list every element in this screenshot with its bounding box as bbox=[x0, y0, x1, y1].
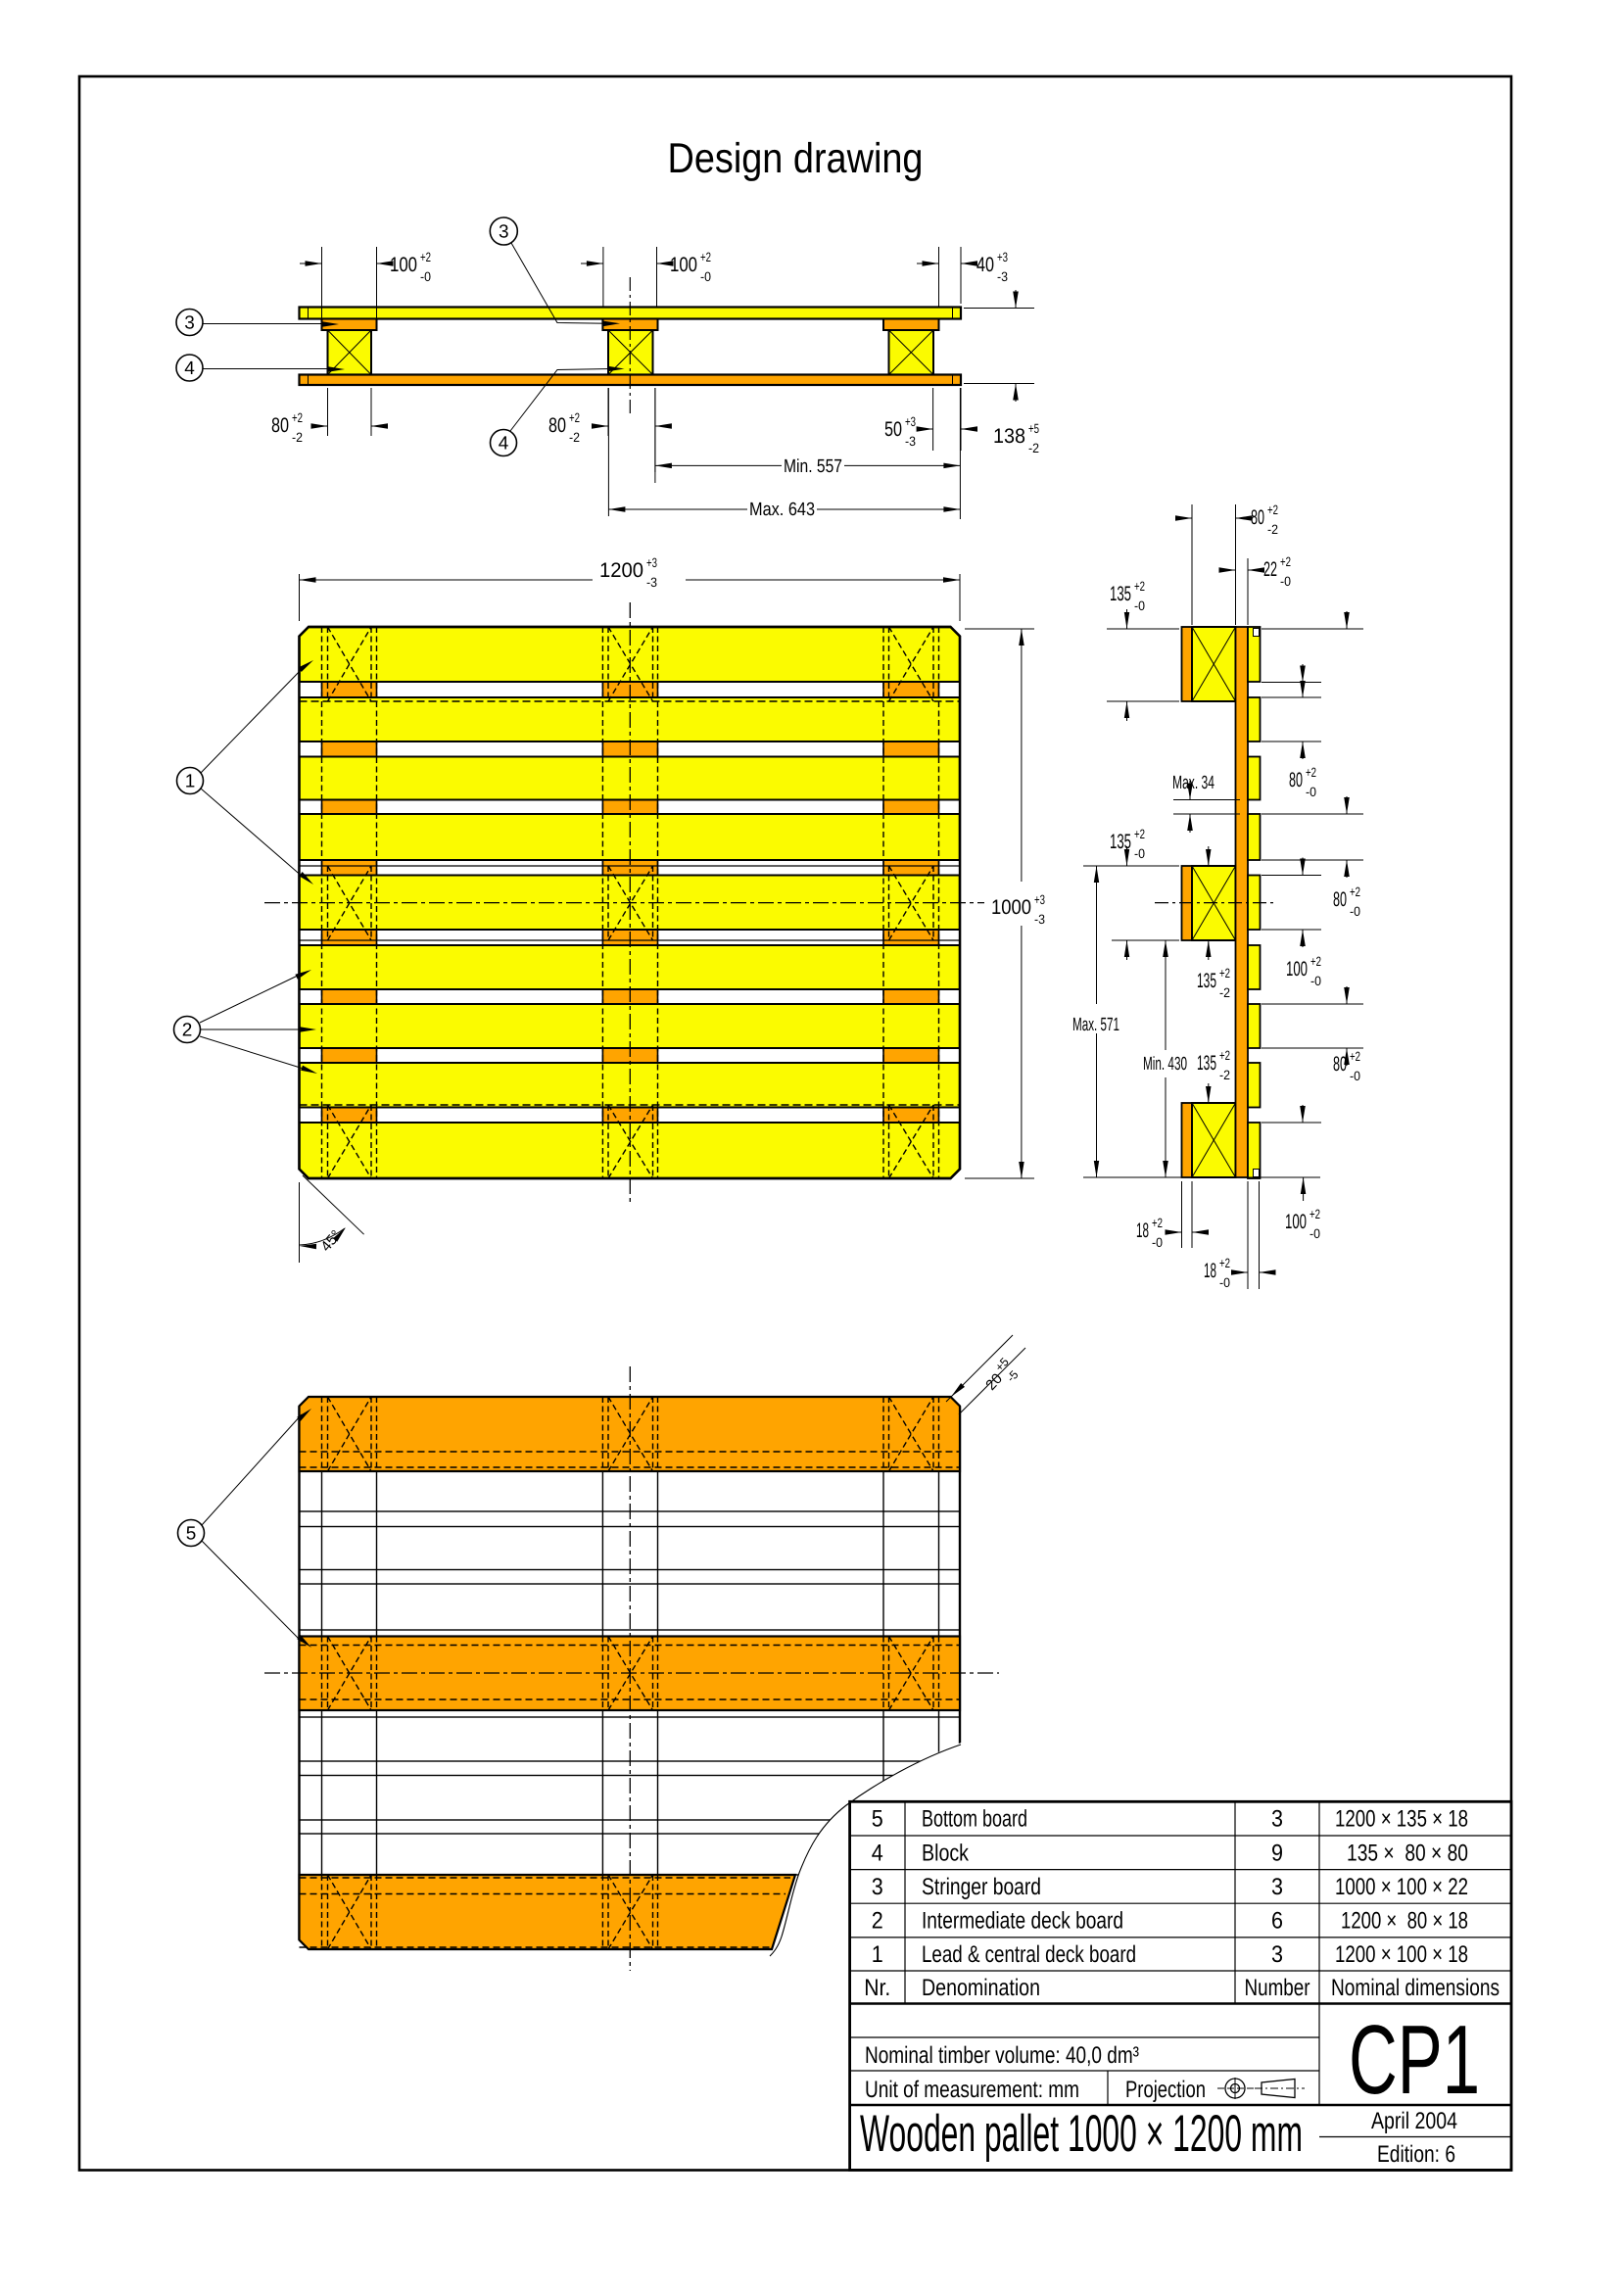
svg-text:Lead & central deck board: Lead & central deck board bbox=[922, 1941, 1136, 1968]
svg-text:+2: +2 bbox=[1280, 554, 1291, 569]
svg-text:100: 100 bbox=[670, 254, 697, 276]
svg-text:+2: +2 bbox=[1219, 966, 1230, 981]
svg-text:Intermediate deck board: Intermediate deck board bbox=[922, 1908, 1123, 1935]
svg-text:135: 135 bbox=[1110, 831, 1131, 853]
svg-text:-3: -3 bbox=[646, 575, 657, 590]
svg-text:Wooden pallet 1000 × 1200 mm: Wooden pallet 1000 × 1200 mm bbox=[860, 2105, 1303, 2163]
svg-text:-0: -0 bbox=[1309, 1226, 1320, 1241]
svg-text:Denomination: Denomination bbox=[922, 1975, 1040, 2001]
svg-text:80: 80 bbox=[1251, 506, 1264, 529]
svg-text:100: 100 bbox=[1285, 1211, 1307, 1233]
svg-text:3: 3 bbox=[1271, 1941, 1283, 1968]
svg-text:+2: +2 bbox=[1219, 1048, 1230, 1063]
svg-text:1: 1 bbox=[185, 772, 196, 792]
svg-text:80: 80 bbox=[1333, 1053, 1347, 1076]
svg-text:+2: +2 bbox=[1267, 502, 1278, 517]
svg-text:CP1: CP1 bbox=[1349, 2005, 1480, 2115]
svg-text:1: 1 bbox=[872, 1941, 883, 1968]
svg-text:5: 5 bbox=[186, 1524, 197, 1545]
svg-text:4: 4 bbox=[184, 359, 195, 379]
svg-text:-2: -2 bbox=[1219, 985, 1230, 1000]
svg-text:2: 2 bbox=[872, 1908, 883, 1935]
svg-text:3: 3 bbox=[499, 222, 509, 243]
svg-text:80: 80 bbox=[1289, 769, 1303, 791]
svg-text:5: 5 bbox=[872, 1806, 883, 1833]
svg-text:+2: +2 bbox=[700, 250, 711, 264]
svg-text:Edition: 6: Edition: 6 bbox=[1377, 2141, 1455, 2168]
svg-text:Unit of measurement: mm: Unit of measurement: mm bbox=[865, 2077, 1079, 2103]
svg-text:+2: +2 bbox=[1306, 765, 1316, 780]
svg-text:138: 138 bbox=[993, 425, 1025, 448]
svg-text:135: 135 bbox=[1197, 1052, 1216, 1075]
svg-text:Nominal timber volume: 40,0 dm: Nominal timber volume: 40,0 dm³ bbox=[865, 2042, 1139, 2069]
svg-text:Block: Block bbox=[922, 1840, 970, 1866]
svg-text:-0: -0 bbox=[1134, 846, 1145, 861]
svg-text:50: 50 bbox=[884, 418, 902, 441]
svg-text:-0: -0 bbox=[700, 269, 711, 284]
svg-text:1200 × 80 × 18: 1200 × 80 × 18 bbox=[1341, 1908, 1468, 1935]
svg-text:3: 3 bbox=[184, 313, 195, 334]
svg-text:-2: -2 bbox=[569, 430, 580, 445]
svg-text:Max. 643: Max. 643 bbox=[749, 500, 815, 520]
svg-text:April 2004: April 2004 bbox=[1371, 2108, 1457, 2134]
svg-text:-0: -0 bbox=[1306, 785, 1316, 799]
svg-text:2: 2 bbox=[182, 1021, 193, 1041]
svg-text:-3: -3 bbox=[905, 434, 916, 449]
svg-text:1000: 1000 bbox=[991, 896, 1031, 919]
svg-text:Number: Number bbox=[1245, 1975, 1310, 2001]
svg-text:100: 100 bbox=[1286, 958, 1308, 981]
svg-text:Projection: Projection bbox=[1125, 2077, 1206, 2103]
svg-text:+2: +2 bbox=[1134, 827, 1145, 841]
svg-text:80: 80 bbox=[271, 414, 289, 437]
svg-text:9: 9 bbox=[1271, 1840, 1283, 1866]
svg-text:+2: +2 bbox=[1152, 1216, 1163, 1230]
svg-text:-3: -3 bbox=[997, 269, 1008, 284]
svg-text:+2: +2 bbox=[292, 410, 303, 425]
svg-text:135: 135 bbox=[1110, 583, 1131, 605]
svg-text:+2: +2 bbox=[1219, 1256, 1230, 1270]
svg-text:-0: -0 bbox=[1219, 1275, 1230, 1290]
svg-text:-2: -2 bbox=[1219, 1068, 1230, 1082]
svg-text:-0: -0 bbox=[1152, 1235, 1163, 1250]
svg-text:-3: -3 bbox=[1034, 912, 1045, 927]
svg-text:+3: +3 bbox=[997, 250, 1008, 264]
svg-text:+2: +2 bbox=[1310, 954, 1321, 969]
svg-text:3: 3 bbox=[1271, 1806, 1283, 1833]
svg-text:Nominal dimensions: Nominal dimensions bbox=[1331, 1975, 1500, 2001]
svg-text:-0: -0 bbox=[1280, 574, 1291, 589]
svg-text:4: 4 bbox=[499, 434, 509, 454]
svg-text:18: 18 bbox=[1136, 1220, 1149, 1242]
svg-text:Stringer board: Stringer board bbox=[922, 1874, 1041, 1900]
svg-text:22: 22 bbox=[1263, 558, 1277, 581]
svg-text:-0: -0 bbox=[1310, 974, 1321, 988]
svg-text:1000 × 100 × 22: 1000 × 100 × 22 bbox=[1335, 1874, 1468, 1900]
svg-text:1200: 1200 bbox=[599, 559, 643, 582]
svg-text:135: 135 bbox=[1197, 970, 1216, 992]
svg-text:-0: -0 bbox=[1350, 904, 1360, 919]
svg-text:Nr.: Nr. bbox=[864, 1975, 890, 2001]
svg-text:+2: +2 bbox=[1350, 1049, 1360, 1064]
svg-text:Max. 34: Max. 34 bbox=[1172, 773, 1214, 793]
svg-text:1200 × 100 × 18: 1200 × 100 × 18 bbox=[1335, 1941, 1468, 1968]
svg-text:-0: -0 bbox=[1350, 1069, 1360, 1083]
svg-text:+2: +2 bbox=[1309, 1207, 1320, 1221]
svg-text:-2: -2 bbox=[1028, 441, 1039, 455]
svg-text:18: 18 bbox=[1204, 1260, 1216, 1282]
svg-text:+5: +5 bbox=[1028, 421, 1039, 436]
svg-text:-2: -2 bbox=[292, 430, 303, 445]
svg-text:Max. 571: Max. 571 bbox=[1072, 1015, 1119, 1035]
svg-text:-0: -0 bbox=[420, 269, 431, 284]
svg-text:+2: +2 bbox=[420, 250, 431, 264]
svg-text:3: 3 bbox=[1271, 1874, 1283, 1900]
svg-text:1200 × 135 × 18: 1200 × 135 × 18 bbox=[1335, 1806, 1468, 1833]
svg-text:6: 6 bbox=[1271, 1908, 1283, 1935]
svg-text:Min. 430: Min. 430 bbox=[1143, 1054, 1187, 1075]
svg-text:4: 4 bbox=[872, 1840, 883, 1866]
svg-text:+2: +2 bbox=[1134, 579, 1145, 594]
svg-text:100: 100 bbox=[390, 254, 417, 276]
svg-text:Min. 557: Min. 557 bbox=[784, 456, 842, 477]
svg-text:80: 80 bbox=[548, 414, 566, 437]
svg-text:Bottom board: Bottom board bbox=[922, 1806, 1027, 1833]
svg-text:Design drawing: Design drawing bbox=[668, 135, 924, 182]
svg-text:-2: -2 bbox=[1267, 522, 1278, 537]
svg-text:+2: +2 bbox=[569, 410, 580, 425]
svg-text:+3: +3 bbox=[646, 555, 657, 570]
svg-text:+2: +2 bbox=[1350, 885, 1360, 899]
svg-text:135 × 80 × 80: 135 × 80 × 80 bbox=[1347, 1840, 1468, 1866]
svg-text:3: 3 bbox=[872, 1874, 883, 1900]
svg-text:+3: +3 bbox=[905, 414, 916, 429]
svg-text:80: 80 bbox=[1333, 888, 1347, 911]
svg-text:-0: -0 bbox=[1134, 598, 1145, 613]
svg-text:+3: +3 bbox=[1034, 892, 1045, 907]
svg-text:40: 40 bbox=[976, 254, 994, 276]
